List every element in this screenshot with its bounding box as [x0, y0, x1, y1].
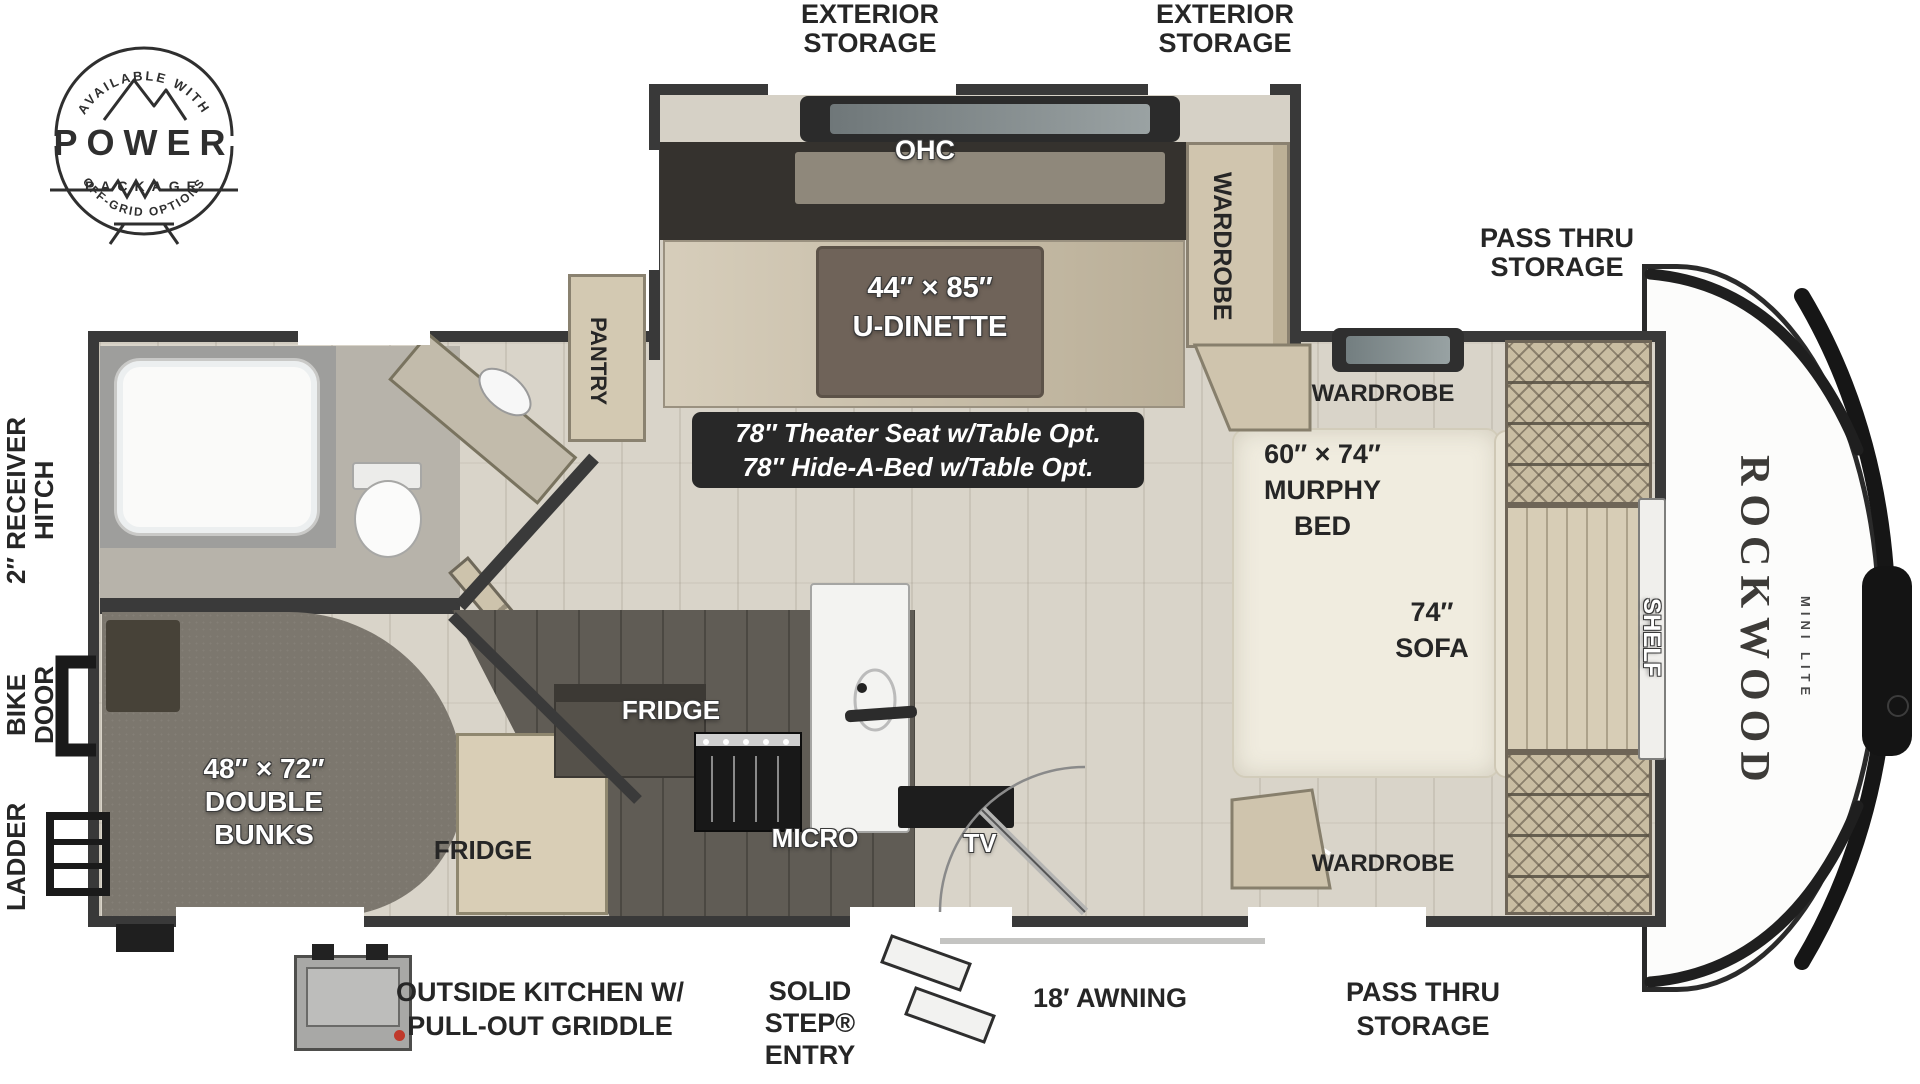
tv-unit — [898, 786, 1014, 828]
entry-door — [810, 583, 910, 833]
griddle-mount-right — [366, 944, 388, 960]
front-bed-platform — [1505, 505, 1652, 752]
toilet — [354, 480, 422, 558]
bunk-window — [176, 907, 364, 929]
option-note-line2: 78″ Hide-A-Bed w/Table Opt. — [692, 450, 1144, 484]
bunk-side-cabinet — [106, 620, 180, 712]
slideout-window-right — [1148, 80, 1270, 95]
bathtub — [114, 358, 320, 536]
brand-model: ROCKWOOD — [1730, 448, 1778, 798]
brand-trim: MINI LITE — [1798, 578, 1813, 718]
floorplan-page: AVAILABLE WITH OFF-GRID OPTIONS POWER PA… — [0, 0, 1920, 1084]
bike-door-label: BIKE DOOR — [2, 645, 64, 765]
sofa-label: 74″ SOFA — [1352, 594, 1512, 666]
rear-bumper — [116, 924, 174, 952]
fridge-label-lower: FRIDGE — [408, 836, 558, 864]
ladder-label: LADDER — [2, 782, 30, 932]
front-wardrobe-top-label: WARDROBE — [1283, 381, 1483, 407]
griddle-mount-left — [312, 944, 334, 960]
slideout-wardrobe — [1186, 142, 1290, 348]
exterior-storage-label-left: EXTERIOR STORAGE — [762, 0, 978, 58]
front-wardrobe-bottom-label: WARDROBE — [1283, 851, 1483, 877]
micro-label: MICRO — [745, 824, 885, 852]
sofa-window — [1248, 907, 1426, 929]
outside-kitchen-label: OUTSIDE KITCHEN W/ PULL-OUT GRIDDLE — [350, 975, 730, 1043]
stove — [694, 732, 802, 832]
pass-thru-storage-label-top: PASS THRU STORAGE — [1452, 224, 1662, 282]
pantry-label: PANTRY — [586, 286, 610, 436]
slideout-wardrobe-label: WARDROBE — [1208, 150, 1235, 342]
badge-subtitle: PACKAGE — [38, 178, 250, 194]
ohc-label: OHC — [880, 136, 970, 165]
option-note-line1: 78″ Theater Seat w/Table Opt. — [692, 416, 1144, 450]
dinette-size-label: 44″ × 85″ — [819, 273, 1041, 304]
entry-steps — [882, 936, 994, 1042]
slideout-window-left — [768, 80, 956, 95]
front-storage-bottom — [1505, 752, 1652, 915]
tv-label: TV — [940, 829, 1020, 857]
receiver-hitch-label: 2″ RECEIVER HITCH — [2, 380, 64, 620]
front-window-glass — [1346, 336, 1450, 364]
pass-thru-storage-label-bottom: PASS THRU STORAGE — [1318, 975, 1528, 1043]
exterior-storage-label-right: EXTERIOR STORAGE — [1117, 0, 1333, 58]
bunks-label: 48″ × 72″ DOUBLE BUNKS — [150, 752, 378, 851]
murphy-bed-label: 60″ × 74″ MURPHY BED — [1200, 436, 1445, 544]
slideout-side-window — [647, 150, 659, 270]
overhead-cabinet-panel — [795, 152, 1165, 204]
dinette-table: 44″ × 85″ U-DINETTE — [816, 246, 1044, 398]
awning-bar — [940, 938, 1265, 944]
option-note-box: 78″ Theater Seat w/Table Opt. 78″ Hide-A… — [692, 412, 1144, 488]
badge-title: POWER — [38, 122, 250, 164]
fridge-label-upper: FRIDGE — [596, 696, 746, 724]
awning-label: 18′ AWNING — [1010, 984, 1210, 1013]
bathroom-window — [298, 327, 430, 345]
solid-step-label: SOLID STEP® ENTRY — [730, 975, 890, 1071]
front-storage-top — [1505, 340, 1652, 505]
entry-opening — [850, 907, 1012, 929]
shelf-label: SHELF — [1638, 572, 1664, 702]
dinette-name-label: U-DINETTE — [819, 312, 1041, 343]
slideout-window-glass — [830, 104, 1150, 134]
